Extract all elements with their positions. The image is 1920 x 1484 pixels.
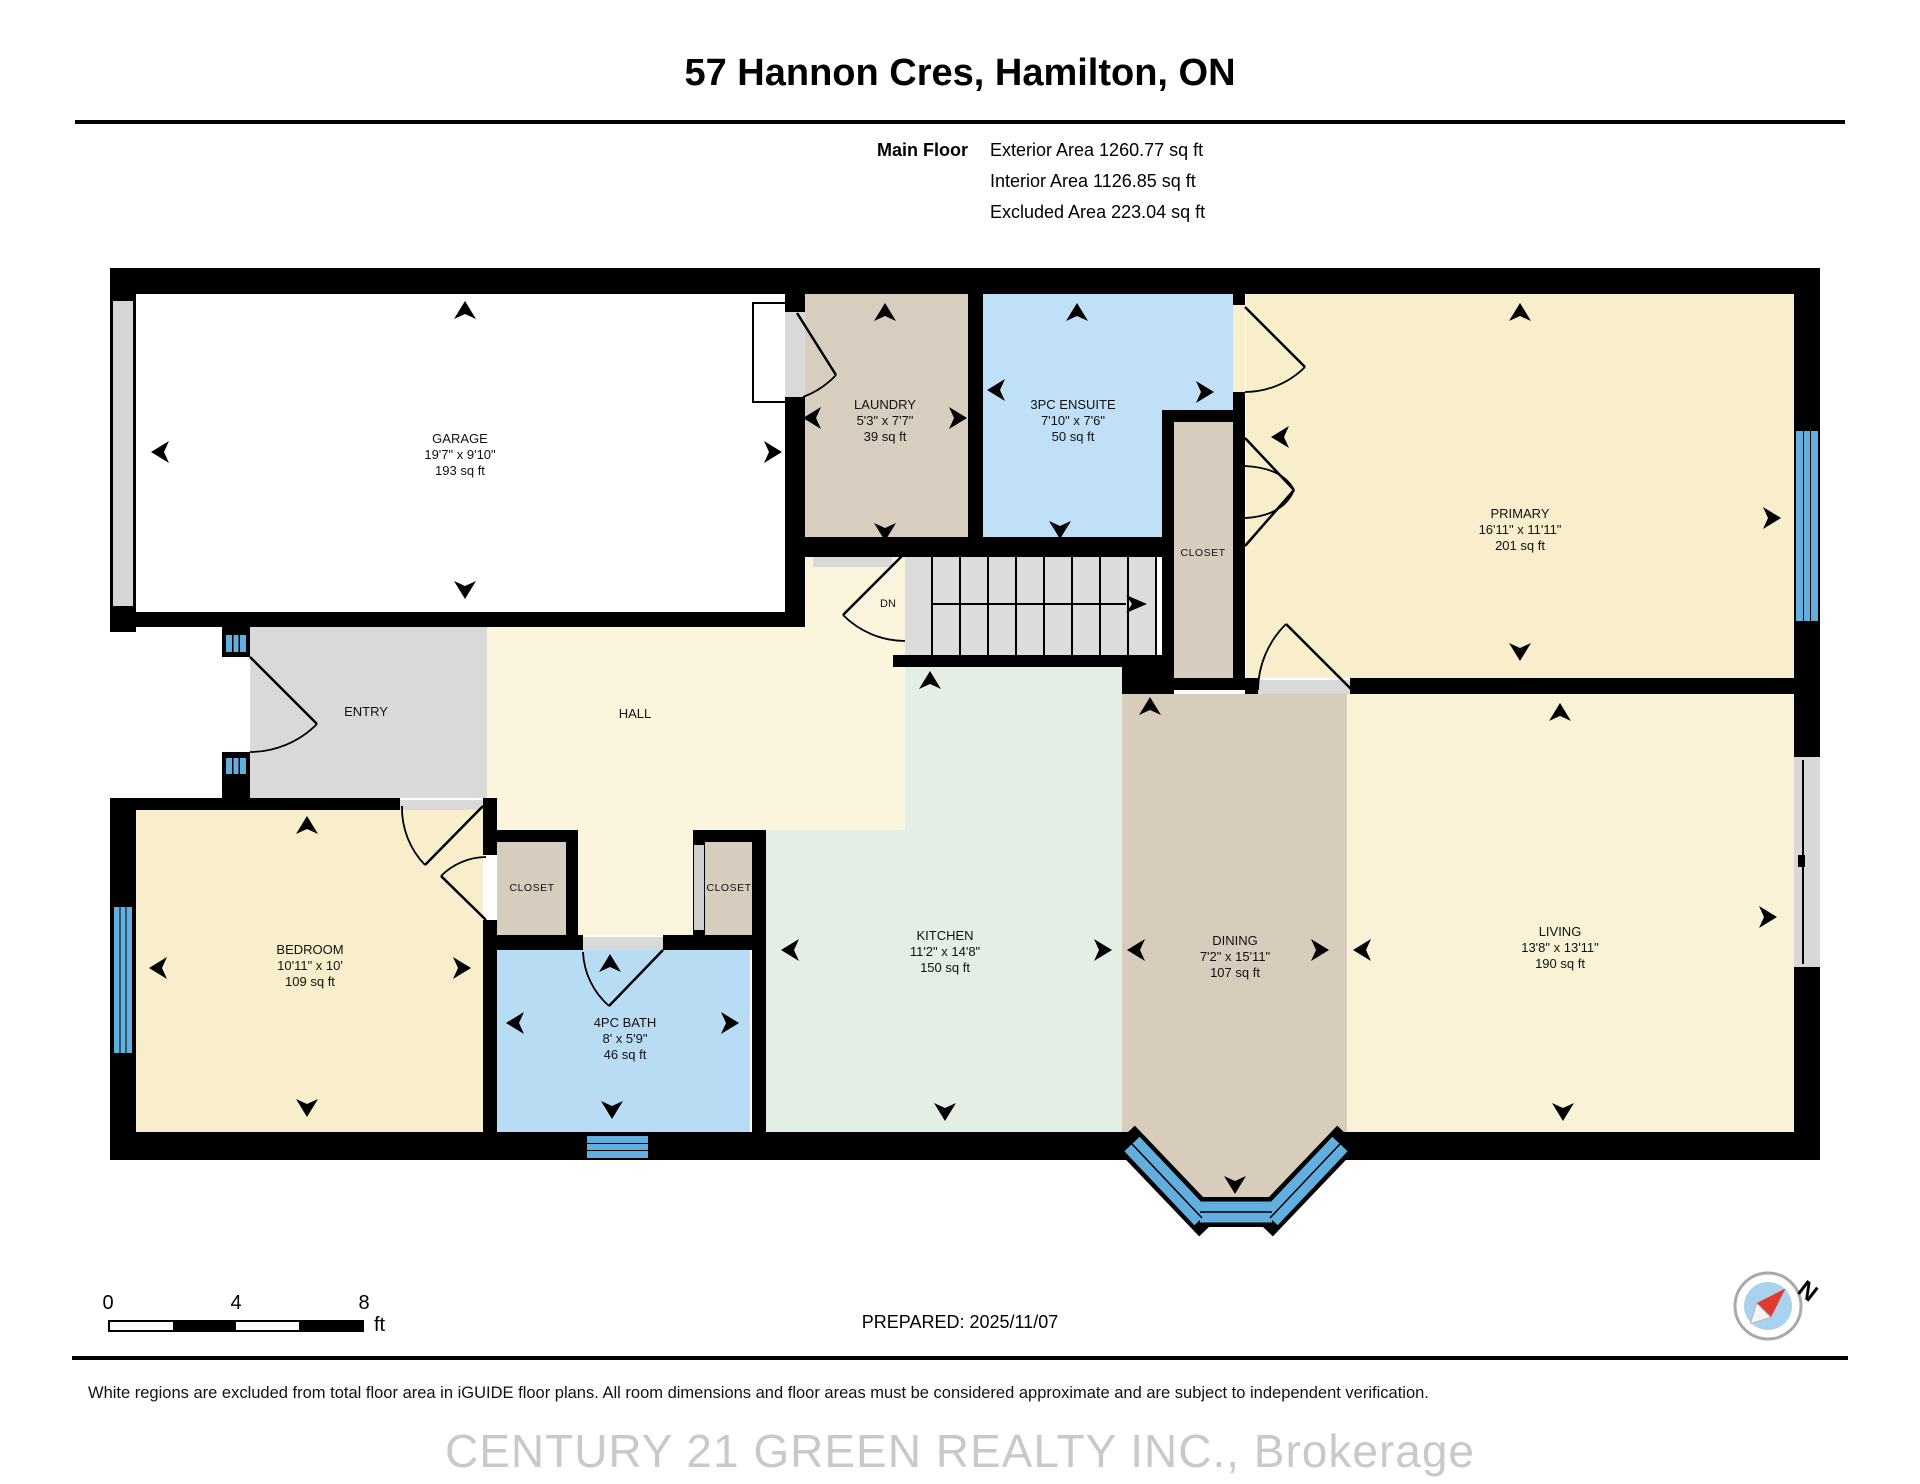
laundry-label: LAUNDRY 5'3" x 7'7" 39 sq ft [854,397,916,445]
closet-left-label: CLOSET [509,880,554,896]
disclaimer-text: White regions are excluded from total fl… [88,1384,1429,1403]
floorplan-annotations: N [0,0,1920,1484]
bedroom-label: BEDROOM 10'11" x 10' 109 sq ft [276,942,343,990]
bath-label: 4PC BATH 8' x 5'9" 46 sq ft [594,1015,657,1063]
living-label: LIVING 13'8" x 13'11" 190 sq ft [1521,924,1599,972]
closet-right-label: CLOSET [706,880,751,896]
dining-label: DINING 7'2" x 15'11" 107 sq ft [1200,933,1270,981]
floorplan-page: 57 Hannon Cres, Hamilton, ON Main Floor … [0,0,1920,1484]
footer-divider [72,1356,1848,1360]
dimension-arrows [149,301,1781,1194]
prepared-date: PREPARED: 2025/11/07 [0,1312,1920,1333]
brokerage-watermark: CENTURY 21 GREEN REALTY INC., Brokerage [0,1424,1920,1478]
primary-label: PRIMARY 16'11" x 11'11" 201 sq ft [1479,506,1562,554]
stairs-dn-label: DN [880,596,896,612]
kitchen-label: KITCHEN 11'2" x 14'8" 150 sq ft [910,928,980,976]
entry-label: ENTRY [344,704,388,720]
hall-label: HALL [619,706,652,722]
stairs-direction-arrow [932,595,1147,613]
door-arcs [250,307,1352,1006]
primary-closet-label: CLOSET [1180,545,1225,561]
garage-label: GARAGE 19'7" x 9'10" 193 sq ft [424,431,495,479]
ensuite-label: 3PC ENSUITE 7'10" x 7'6" 50 sq ft [1030,397,1115,445]
